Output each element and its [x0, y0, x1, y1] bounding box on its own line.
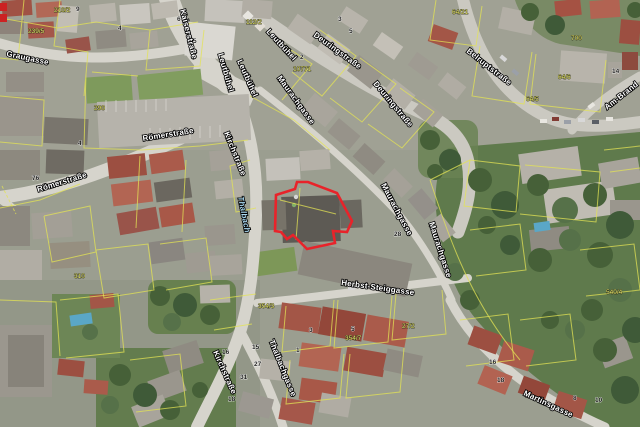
- house-number-8: 2: [300, 54, 304, 61]
- parcel-number-0: 210/2: [54, 7, 71, 14]
- house-number-7: 5: [349, 28, 353, 35]
- parcel-number-2: 112/2: [246, 19, 262, 26]
- parcel-number-3: 290: [94, 105, 105, 112]
- house-number-0: 9: [76, 6, 80, 13]
- house-number-9: 76: [32, 175, 40, 182]
- parcel-number-11: 354/7: [345, 335, 362, 342]
- house-number-1: 4: [118, 25, 122, 32]
- house-number-11: 14: [612, 68, 620, 75]
- parcel-number-10: 354/3: [258, 303, 275, 310]
- parcel-number-1: 239/5: [28, 28, 45, 35]
- parcel-number-6: 64/21: [452, 9, 469, 16]
- house-number-5: 4: [78, 140, 82, 147]
- parcel-number-5: 700: [571, 35, 582, 42]
- house-number-16: 18: [228, 396, 236, 403]
- parcel-number-9: 310: [74, 273, 85, 280]
- house-number-10: 28: [394, 231, 402, 238]
- house-number-13: 15: [252, 344, 260, 351]
- house-number-19: 5: [351, 326, 355, 333]
- red-edge-marker: [0, 3, 7, 11]
- house-number-12: 16: [222, 349, 230, 356]
- red-edge-marker: [0, 14, 7, 22]
- house-number-22: 8: [573, 395, 577, 402]
- house-number-14: 27: [254, 361, 262, 368]
- house-number-15: 31: [240, 374, 248, 381]
- aerial-map-canvas: 210/2239/5112/22901077170064/2164/664/53…: [0, 0, 640, 427]
- parcel-number-4: 10771: [293, 66, 311, 73]
- house-number-18: 3: [309, 327, 313, 334]
- aerial-map[interactable]: 210/2239/5112/22901077170064/2164/664/53…: [0, 0, 640, 427]
- parcel-number-8: 64/5: [526, 96, 539, 103]
- parcel-number-7: 64/6: [558, 74, 571, 81]
- parcel-number-12: 27/2: [402, 323, 415, 330]
- house-number-6: 3: [338, 16, 342, 23]
- house-number-23: 10: [595, 397, 603, 404]
- house-number-17: 1: [296, 347, 300, 354]
- house-number-21: 18: [497, 377, 505, 384]
- parcel-number-13: 540/4: [606, 289, 623, 296]
- house-number-20: 16: [489, 359, 497, 366]
